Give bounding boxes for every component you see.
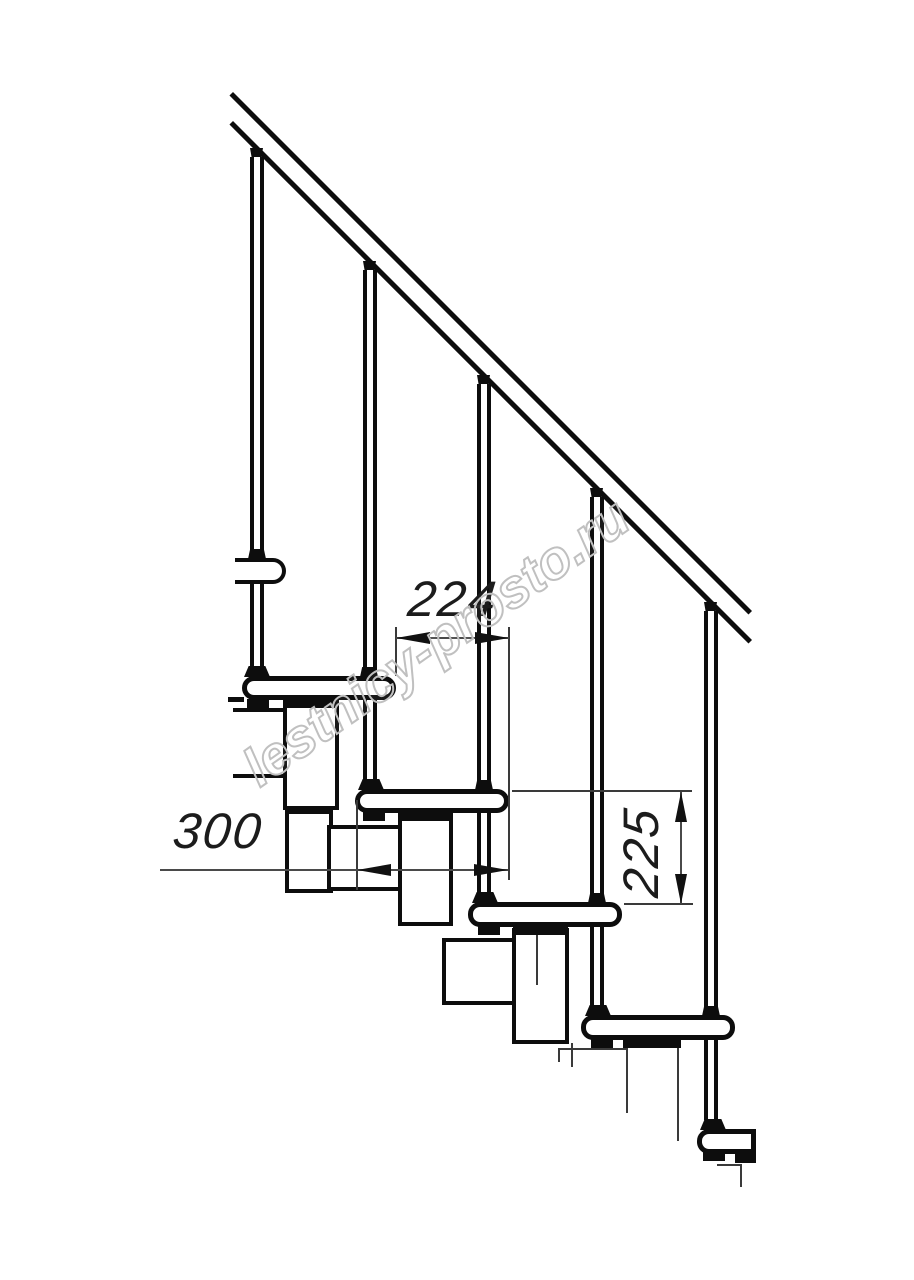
tread-5-tab	[703, 1152, 725, 1161]
column-4-band	[623, 1039, 681, 1048]
dimension-depth-line	[160, 869, 508, 871]
stringer-cut-line-a	[571, 1043, 573, 1067]
baluster-1-collar	[248, 549, 266, 559]
baluster-3-foot	[472, 892, 498, 903]
stringer-square-5-right-line	[740, 1164, 742, 1187]
baluster-2-foot	[358, 779, 384, 790]
dimension-rise-label: 225	[614, 799, 668, 905]
tread-4	[581, 1015, 735, 1040]
dimension-depth-label: 300	[165, 804, 271, 858]
stringer-square-4-left-line	[558, 1048, 560, 1062]
stringer-square-5-top-line	[717, 1164, 741, 1166]
tread-4-tab	[591, 1039, 613, 1048]
tread-5-tab-right	[735, 1154, 756, 1163]
baluster-5-collar	[702, 1006, 720, 1016]
column-3-band	[513, 926, 568, 935]
baluster-5	[704, 611, 718, 1120]
baluster-4-collar	[588, 893, 606, 903]
tread-3	[468, 902, 622, 927]
baluster-1	[250, 157, 264, 666]
staircase-technical-drawing: 224 300 225 lestnicy-prosto.ru	[0, 0, 914, 1280]
stringer-column-4-right-line	[677, 1047, 679, 1141]
dimension-depth-arrow-right	[474, 864, 508, 876]
stringer-square-3	[442, 938, 519, 1005]
stringer-square-4-top-line	[558, 1048, 628, 1050]
tread-2	[355, 789, 509, 813]
tread-1-left-stub	[228, 697, 244, 702]
stringer-square-2	[327, 825, 404, 891]
dimension-rise-ext-top	[512, 790, 692, 792]
stringer-square-4-right-line	[626, 1048, 628, 1113]
stringer-cut-line-b	[536, 933, 538, 985]
dimension-rise-arrow-up	[675, 792, 687, 822]
baluster-1-cap	[250, 148, 263, 157]
dimension-rise-arrow-down	[675, 874, 687, 904]
column-2-band	[399, 812, 452, 821]
baluster-4-foot	[585, 1005, 611, 1016]
dimension-depth-ext-left	[356, 800, 358, 890]
baluster-3-cap	[477, 375, 490, 384]
tread-3-tab	[478, 926, 500, 935]
baluster-3-collar	[475, 780, 493, 790]
baluster-5-cap	[704, 602, 717, 611]
upper-flight-tread-end	[235, 558, 286, 584]
baluster-5-foot	[700, 1119, 726, 1130]
tread-5-cut	[697, 1129, 756, 1154]
dimension-depth-arrow-left	[357, 864, 391, 876]
dimension-going-ext-right	[508, 627, 510, 880]
tread-2-tab	[363, 812, 385, 821]
stringer-column-3	[512, 928, 569, 1044]
baluster-1-foot	[244, 666, 270, 677]
stringer-box-1	[285, 810, 333, 893]
baluster-2-cap	[363, 261, 376, 270]
tread-1-tab	[247, 699, 269, 708]
